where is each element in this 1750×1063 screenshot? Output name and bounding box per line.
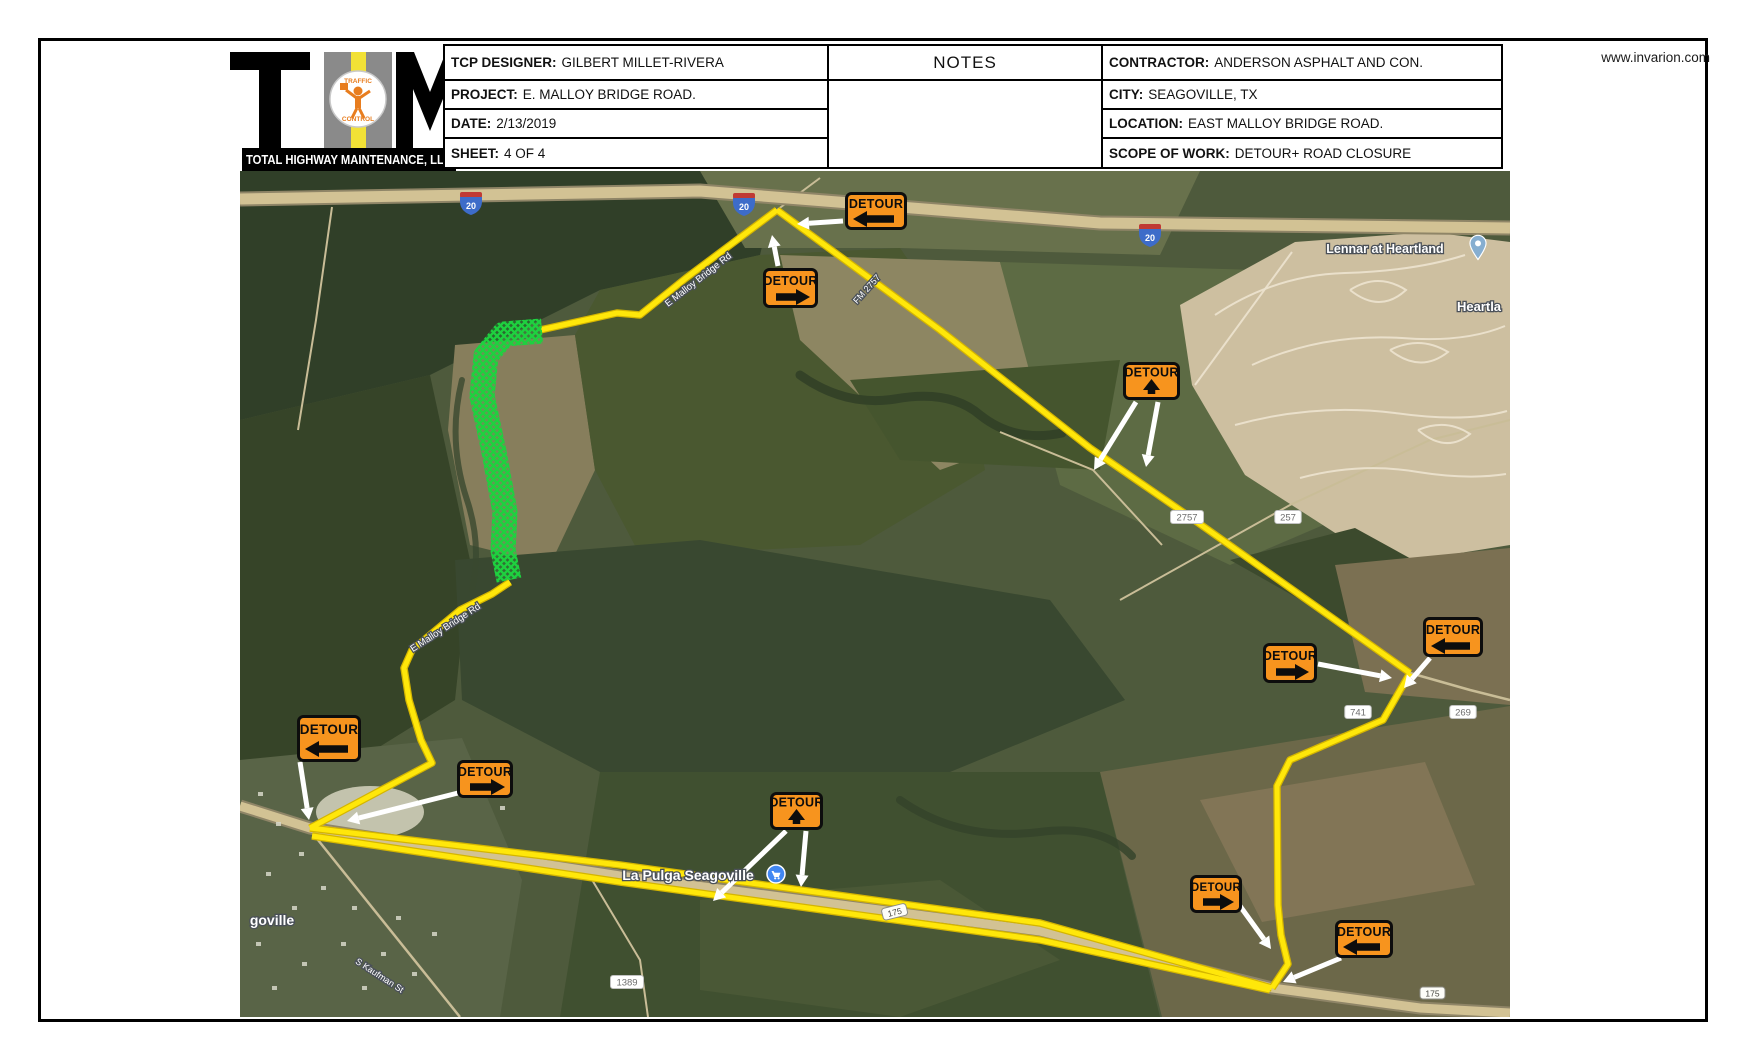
road-number-label: 269 — [1450, 706, 1477, 719]
sheet-row: SHEET: 4 OF 4 — [445, 139, 827, 167]
project-value: E. MALLOY BRIDGE ROAD. — [523, 87, 696, 102]
building — [396, 916, 401, 920]
cart-wheel — [778, 877, 780, 879]
contractor-label: CONTRACTOR: — [1109, 55, 1209, 70]
building — [381, 952, 386, 956]
logo-banner-text: TOTAL HIGHWAY MAINTENANCE, LLC — [246, 153, 452, 167]
road-number-label: 741 — [1345, 706, 1372, 719]
place-label: La Pulga Seagoville — [622, 867, 754, 883]
detour-left-sign: DETOUR — [1425, 619, 1482, 656]
sign-text: DETOUR — [849, 197, 903, 211]
city-row: CITY: SEAGOVILLE, TX — [1103, 81, 1501, 110]
shield-number: 20 — [1145, 233, 1155, 243]
place-label: Lennar at Heartland — [1326, 242, 1443, 256]
logo-letter-t — [230, 52, 310, 148]
cart-wheel — [774, 877, 776, 879]
tcp-designer-value: GILBERT MILLET-RIVERA — [562, 55, 724, 70]
pointer-arrow-shaft — [809, 221, 843, 223]
building — [412, 972, 417, 976]
notes-body[interactable] — [829, 81, 1101, 167]
logo-emblem-traffic: TRAFFIC — [344, 78, 372, 85]
detour-right-sign: DETOUR — [1263, 645, 1317, 682]
building — [256, 942, 261, 946]
sheet-value: 4 OF 4 — [504, 146, 545, 161]
building — [272, 986, 277, 990]
sheet-label: SHEET: — [451, 146, 499, 161]
place-label: goville — [250, 912, 295, 928]
sign-text: DETOUR — [1263, 649, 1317, 663]
building — [292, 906, 297, 910]
notes-title: NOTES — [829, 46, 1101, 81]
tcp-designer-label: TCP DESIGNER: — [451, 55, 557, 70]
label-text: 257 — [1280, 513, 1296, 524]
project-label: PROJECT: — [451, 87, 518, 102]
detour-up-sign: DETOUR — [1124, 364, 1178, 399]
building — [302, 962, 307, 966]
date-row: DATE: 2/13/2019 — [445, 110, 827, 139]
website-link[interactable]: www.invarion.com — [1540, 50, 1710, 65]
detour-up-sign: DETOUR — [769, 794, 823, 829]
sign-text: DETOUR — [1426, 623, 1480, 637]
building — [341, 942, 346, 946]
building — [352, 906, 357, 910]
shield-number: 175 — [1425, 989, 1439, 999]
date-value: 2/13/2019 — [496, 116, 556, 131]
us-175-shield: 175 — [1420, 987, 1445, 999]
left-info-table: TCP DESIGNER: GILBERT MILLET-RIVERA PROJ… — [443, 44, 829, 169]
sign-text: DETOUR — [1337, 925, 1391, 939]
detour-left-sign: DETOUR — [1337, 922, 1392, 957]
road-number-label: 1389 — [611, 976, 644, 989]
city-value: SEAGOVILLE, TX — [1148, 87, 1257, 102]
notes-box: NOTES — [827, 44, 1103, 169]
building — [362, 986, 367, 990]
city-label: CITY: — [1109, 87, 1143, 102]
sign-text: DETOUR — [300, 722, 359, 737]
building — [266, 872, 271, 876]
building — [258, 792, 263, 796]
place-label: Heartla — [1457, 299, 1502, 314]
logo-emblem-control: CONTROL — [342, 116, 374, 123]
building — [321, 886, 326, 890]
label-text: 1389 — [616, 978, 637, 989]
location-row: LOCATION: EAST MALLOY BRIDGE ROAD. — [1103, 110, 1501, 139]
detour-right-sign: DETOUR — [763, 270, 817, 307]
sign-text: DETOUR — [1124, 366, 1178, 380]
right-info-table: CONTRACTOR: ANDERSON ASPHALT AND CON. CI… — [1101, 44, 1503, 169]
pin-dot — [1475, 240, 1481, 246]
label-text: 269 — [1455, 708, 1471, 719]
label-text: 741 — [1350, 708, 1366, 719]
store-icon — [767, 865, 785, 883]
scope-value: DETOUR+ ROAD CLOSURE — [1235, 146, 1411, 161]
company-logo: TRAFFIC CONTROL TOTAL HIGHWAY MAINTENANC… — [228, 44, 458, 172]
contractor-row: CONTRACTOR: ANDERSON ASPHALT AND CON. — [1103, 46, 1501, 81]
location-value: EAST MALLOY BRIDGE ROAD. — [1188, 116, 1383, 131]
road-number-label: 257 — [1275, 511, 1302, 524]
building — [299, 852, 304, 856]
page: www.invarion.com TRAFFIC CONTROL TOTAL H… — [0, 0, 1750, 1063]
sign-text: DETOUR — [763, 274, 817, 288]
detour-right-sign: DETOUR — [458, 762, 512, 797]
sign-text: DETOUR — [769, 796, 823, 810]
scope-row: SCOPE OF WORK: DETOUR+ ROAD CLOSURE — [1103, 139, 1501, 167]
sign-text: DETOUR — [458, 765, 512, 779]
sign-text: DETOUR — [1191, 882, 1242, 894]
building — [432, 932, 437, 936]
shield-number: 20 — [466, 201, 476, 211]
detour-right-sign: DETOUR — [1191, 877, 1242, 912]
road-number-label: 2757 — [1171, 511, 1204, 524]
shield-number: 20 — [739, 202, 749, 212]
location-label: LOCATION: — [1109, 116, 1183, 131]
building — [276, 822, 281, 826]
contractor-value: ANDERSON ASPHALT AND CON. — [1214, 55, 1423, 70]
building — [500, 806, 505, 810]
detour-left-sign: DETOUR — [847, 194, 906, 229]
detour-left-sign: DETOUR — [299, 717, 360, 761]
date-label: DATE: — [451, 116, 491, 131]
map-canvas[interactable]: 20202017517527572577412691389Lennar at H… — [240, 171, 1510, 1017]
scope-label: SCOPE OF WORK: — [1109, 146, 1230, 161]
project-row: PROJECT: E. MALLOY BRIDGE ROAD. — [445, 81, 827, 110]
label-text: 2757 — [1176, 513, 1197, 524]
tcp-designer-row: TCP DESIGNER: GILBERT MILLET-RIVERA — [445, 46, 827, 81]
